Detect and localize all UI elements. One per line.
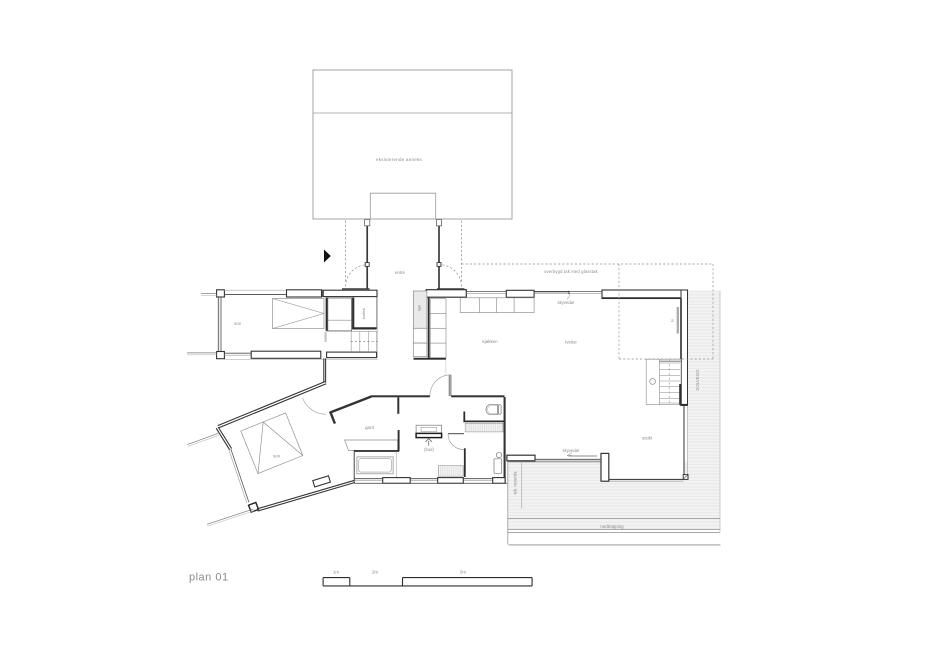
svg-text:eksisterende anneks: eksisterende anneks [376, 157, 422, 162]
svg-text:1m: 1m [333, 570, 339, 575]
svg-text:skyvedør: skyvedør [558, 300, 576, 305]
svg-text:tv: tv [670, 319, 675, 322]
svg-text:sov: sov [273, 454, 281, 459]
svg-text:tek. veranda: tek. veranda [513, 471, 518, 495]
svg-text:tvstue: tvstue [565, 340, 577, 345]
svg-text:kjøkken: kjøkken [482, 339, 498, 344]
svg-text:bøttek.: bøttek. [361, 307, 366, 319]
svg-text:utsikt: utsikt [642, 436, 653, 441]
svg-text:nedtrapping: nedtrapping [600, 524, 624, 529]
svg-text:gard: gard [365, 425, 374, 430]
svg-text:overbygd tak med glasstak: overbygd tak med glasstak [544, 269, 598, 274]
svg-text:5m: 5m [460, 570, 466, 575]
svg-text:2m: 2m [372, 570, 378, 575]
svg-text:skyvedør: skyvedør [563, 448, 581, 453]
svg-text:kjøl: kjøl [417, 305, 422, 311]
svg-text:plan 01: plan 01 [189, 572, 229, 584]
svg-text:(bod): (bod) [424, 447, 434, 452]
svg-text:sov: sov [234, 321, 242, 326]
svg-text:SOLVEGG: SOLVEGG [695, 369, 700, 391]
svg-text:entre: entre [395, 270, 406, 275]
